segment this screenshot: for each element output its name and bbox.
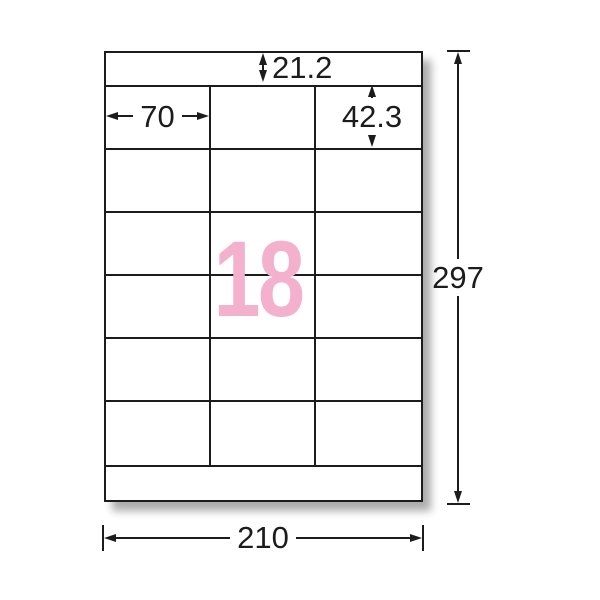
label-cell (316, 402, 421, 465)
label-count-number: 18 (214, 225, 303, 333)
label-cell (106, 213, 211, 276)
label-cell (211, 150, 316, 213)
arrow-up-icon (454, 52, 462, 64)
arrow-up-icon (259, 53, 267, 65)
arrow-down-icon (368, 135, 376, 147)
top-margin-arrow-icon (258, 53, 268, 82)
label-width-value: 70 (133, 101, 181, 132)
label-height-value: 42.3 (342, 98, 402, 135)
arrow-down-icon (259, 70, 267, 82)
sheet-height-value: 297 (432, 259, 484, 296)
label-cell (316, 213, 421, 276)
label-cell (211, 87, 316, 150)
diagram-canvas: 18 21.2 70 42.3 297 210 (0, 0, 600, 600)
label-cell (106, 339, 211, 402)
top-margin-dimension: 21.2 (272, 51, 332, 83)
label-cell (106, 150, 211, 213)
arrow-left-icon (104, 534, 116, 542)
label-cell (106, 276, 211, 339)
label-cell (316, 150, 421, 213)
sheet-height-dimension: 297 (446, 50, 470, 505)
dimension-tick (422, 525, 424, 551)
arrow-down-icon (454, 491, 462, 503)
dimension-tick (447, 503, 470, 505)
label-cell (106, 402, 211, 465)
label-height-dimension: 42.3 (341, 85, 403, 147)
arrow-right-icon (197, 112, 209, 120)
arrow-right-icon (410, 534, 422, 542)
label-cell (211, 402, 316, 465)
top-margin-value: 21.2 (272, 52, 332, 83)
arrow-left-icon (106, 112, 118, 120)
sheet-width-dimension: 210 (102, 524, 424, 551)
sheet-width-value: 210 (230, 522, 296, 553)
label-width-dimension: 70 (106, 101, 209, 131)
label-cell (316, 276, 421, 339)
label-cell (211, 339, 316, 402)
arrow-up-icon (368, 85, 376, 97)
label-cell (316, 339, 421, 402)
